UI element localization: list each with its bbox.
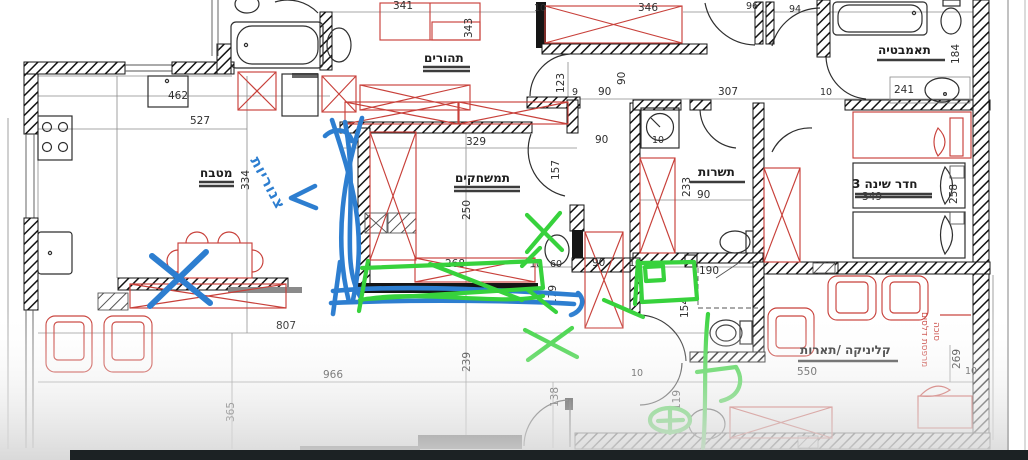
blue-scribble-wall [325,118,362,302]
red-bed [853,112,971,158]
frame-chrome [0,0,1028,460]
dim-10: 10 [965,366,977,377]
red-xbox [238,72,276,110]
room-service: תשרות [698,165,735,179]
dim-90: 90 [616,72,628,85]
dim-90: 90 [592,257,605,269]
green-vertical-line [703,314,708,448]
dim-527: 527 [190,115,210,127]
dim-10: 10 [534,3,546,14]
red-xbox [360,85,470,110]
red-dining-table [167,232,263,278]
dim-90: 90 [598,86,611,98]
dim-341: 341 [393,0,413,12]
room-kitchen: מטבח [200,166,232,180]
dim-233: 233 [681,177,693,197]
bathtub-right [833,2,927,35]
dim-157: 157 [550,160,562,180]
dim-462: 462 [168,90,188,102]
toilet-topleft [235,0,259,13]
red-armchair [828,276,876,320]
red-armchair [46,316,92,372]
dimension-lines [8,12,993,449]
blue-arrow-left [291,186,316,208]
dim-334: 334 [240,170,252,190]
walls [24,0,990,454]
toilet-service [720,231,753,253]
stove [38,116,72,160]
dim-329: 329 [466,136,486,148]
dim-9: 9 [572,87,578,98]
floor-plan-drawing: 341 343 346 96 94 10 462 527 334 123 9 9… [0,0,1028,460]
red-xbox [322,76,356,112]
toilet-topright [941,0,961,34]
dim-269: 269 [951,349,963,369]
red-sofa-corner [918,386,972,428]
dim-239: 239 [461,352,473,372]
dim-966: 966 [323,369,343,381]
red-closet-tall [370,132,416,260]
cabinet-2 [282,74,318,116]
nightstand-2 [950,212,964,224]
dim-90: 90 [697,189,710,201]
red-xbox [459,102,568,124]
dim-10: 10 [631,368,643,379]
room-bathroom: תאמבטיה [878,43,931,57]
dim-60: 60 [550,259,562,270]
bed-2 [853,212,965,258]
floor-plan-frame: 341 343 346 96 94 10 462 527 334 123 9 9… [0,0,1028,460]
bathtub-left [231,22,323,68]
dim-807: 807 [276,320,296,332]
green-x-lower [525,300,643,360]
room-bedroom3: חדר שינה 3 [852,177,918,191]
dim-343: 343 [463,18,475,38]
dim-190: 190 [699,265,719,277]
label-balcony-1: מרפסת דלסים [919,312,929,367]
dim-184: 184 [950,44,962,64]
dim-90: 90 [595,134,608,146]
toilet-wc [710,320,752,346]
red-armchair [104,316,152,372]
room-clinic: קליניקה /תארות [800,343,891,357]
label-balcony-2: סוכה [931,322,941,341]
dim-123: 123 [555,73,567,93]
shelf-bar [228,287,302,293]
bottom-bar [70,450,1028,460]
room-playroom: תמשחקים [455,171,510,185]
blue-handwriting: צנוריות [246,153,289,212]
dim-307: 307 [718,86,738,98]
dim-550: 550 [797,366,817,378]
dim-250: 250 [461,200,473,220]
dim-258: 258 [948,184,960,204]
dim-346: 346 [638,2,658,14]
room-parents: תהורים [424,51,464,65]
dim-10: 10 [652,135,664,146]
nightstand-1 [950,166,964,178]
pillar-pair [365,213,416,233]
red-xbox [545,6,682,43]
green-oval-cross [650,408,690,433]
dim-365: 365 [225,402,237,422]
dim-241: 241 [894,84,914,96]
dim-138: 138 [549,387,561,407]
red-xbox [640,158,675,253]
red-xbox [585,232,623,328]
dim-94: 94 [789,4,801,15]
dim-96: 96 [746,1,758,12]
kitchen-sink [38,232,72,274]
red-xbox [764,168,800,262]
dim-10: 10 [820,87,832,98]
